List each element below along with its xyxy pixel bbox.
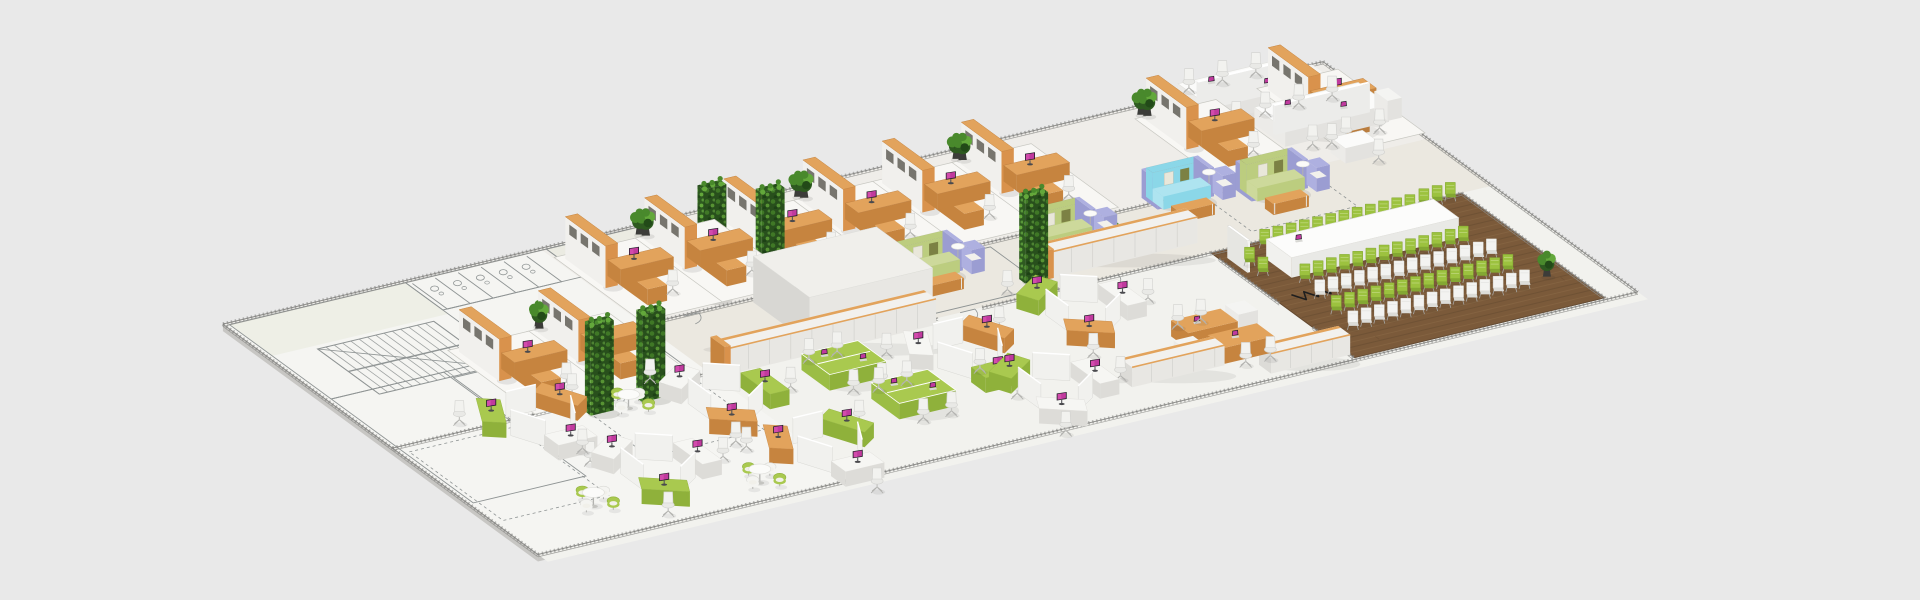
office-floorplan-render [0, 0, 1920, 600]
isometric-office-scene [0, 0, 1920, 600]
